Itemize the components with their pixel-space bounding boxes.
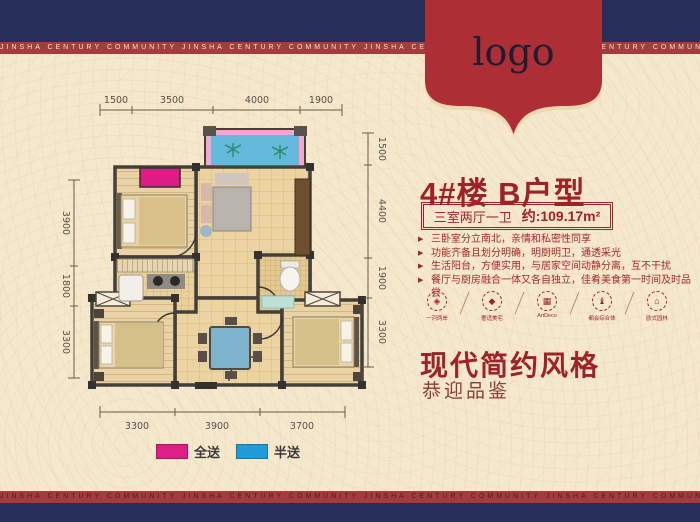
gift-half-label: 半送 bbox=[274, 442, 300, 461]
badge-glyph: ◈ bbox=[434, 296, 441, 307]
feature-badges: ◈ 一河两岸 ◆ 奢适美宅 ▦ ArtDeco ♝ 都会综合体 ⌂ 欧式园林 bbox=[416, 291, 678, 322]
dim-top-1: 1500 bbox=[104, 95, 128, 106]
feature-label: 欧式园林 bbox=[638, 313, 676, 321]
legend: 全送 半送 bbox=[156, 442, 300, 461]
legend-item-full: 全送 bbox=[156, 442, 220, 461]
selling-point: 生活阳台，方便实用，与居家空间动静分离，互不干扰 bbox=[418, 260, 693, 274]
badge-glyph: ⌂ bbox=[654, 296, 659, 306]
logo-text: logo bbox=[425, 30, 602, 74]
dim-right-4: 3300 bbox=[376, 320, 387, 344]
dim-right-3: 1900 bbox=[376, 266, 387, 290]
bottom-navy-band bbox=[0, 503, 700, 522]
floor-plan-drawing: 1500 3500 4000 1900 3900 1800 3300 1500 … bbox=[55, 95, 390, 440]
dim-right-2: 4400 bbox=[376, 199, 387, 223]
toilet bbox=[280, 267, 300, 291]
dim-top-4: 1900 bbox=[309, 95, 333, 106]
spec-text: 三室两厅一卫 bbox=[434, 207, 512, 226]
metropolis-badge-icon: ♝ bbox=[592, 291, 612, 311]
feature-label: ArtDeco bbox=[528, 313, 566, 318]
badge-glyph: ◆ bbox=[489, 296, 496, 307]
area-text: 约:109.17m² bbox=[522, 206, 601, 226]
poster-page: JINSHA CENTURY COMMUNITY JINSHA CENTURY … bbox=[0, 0, 700, 522]
kitchen-sink bbox=[119, 275, 143, 301]
separator-slash bbox=[513, 291, 526, 315]
legend-item-half: 半送 bbox=[236, 442, 300, 461]
feature-label: 一河两岸 bbox=[418, 313, 456, 321]
bottom-strip-text: JINSHA CENTURY COMMUNITY JINSHA CENTURY … bbox=[0, 493, 700, 500]
logo-ribbon: logo bbox=[425, 0, 602, 148]
selling-point: 功能齐备且划分明确，明厨明卫，通透采光 bbox=[418, 247, 693, 261]
dim-left-3: 3300 bbox=[60, 330, 71, 354]
dim-bottom-3: 3700 bbox=[290, 421, 314, 432]
dim-bottom-2: 3900 bbox=[205, 421, 229, 432]
dim-left-1: 3900 bbox=[60, 211, 71, 235]
feature-item: ◈ 一河两岸 bbox=[416, 291, 458, 322]
separator-slash bbox=[458, 291, 471, 315]
feature-item: ◆ 奢适美宅 bbox=[471, 291, 513, 322]
dim-left-2: 1800 bbox=[60, 274, 71, 298]
bath-basin bbox=[262, 296, 294, 308]
spec-box: 三室两厅一卫 约:109.17m² bbox=[423, 204, 611, 228]
badge-glyph: ♝ bbox=[598, 296, 606, 307]
dim-top-2: 3500 bbox=[160, 95, 184, 106]
luxury-home-badge-icon: ◆ bbox=[482, 291, 502, 311]
balcony-water bbox=[211, 135, 299, 165]
separator-slash bbox=[623, 291, 636, 315]
dining-table bbox=[210, 327, 250, 369]
dim-right-1: 1500 bbox=[376, 137, 387, 161]
sofa-table bbox=[213, 187, 251, 231]
logo-ribbon-shape bbox=[425, 0, 602, 148]
riverside-badge-icon: ◈ bbox=[427, 291, 447, 311]
bottom-red-strip: JINSHA CENTURY COMMUNITY JINSHA CENTURY … bbox=[0, 491, 700, 503]
window-right-icon bbox=[305, 292, 340, 306]
feature-label: 都会综合体 bbox=[583, 313, 621, 321]
gift-full-label: 全送 bbox=[194, 442, 220, 461]
separator-slash bbox=[568, 291, 581, 315]
style-subtitle: 恭迎品鉴 bbox=[422, 376, 510, 403]
feature-item: ⌂ 欧式园林 bbox=[636, 291, 678, 322]
wardrobe bbox=[295, 179, 310, 255]
gift-full-area bbox=[140, 168, 180, 187]
gift-half-swatch bbox=[236, 444, 268, 459]
artdeco-badge-icon: ▦ bbox=[537, 291, 557, 311]
feature-item: ♝ 都会综合体 bbox=[581, 291, 623, 322]
dim-top-3: 4000 bbox=[245, 95, 269, 106]
feature-label: 奢适美宅 bbox=[473, 313, 511, 321]
kitchen-counter bbox=[117, 259, 194, 272]
selling-point: 三卧室分立南北，亲情和私密性同享 bbox=[418, 233, 693, 247]
floor-plan: 1500 3500 4000 1900 3900 1800 3300 1500 … bbox=[55, 95, 390, 440]
dim-bottom-1: 3300 bbox=[125, 421, 149, 432]
feature-item: ▦ ArtDeco bbox=[526, 291, 568, 319]
gift-full-swatch bbox=[156, 444, 188, 459]
badge-glyph: ▦ bbox=[543, 296, 552, 307]
garden-badge-icon: ⌂ bbox=[647, 291, 667, 311]
